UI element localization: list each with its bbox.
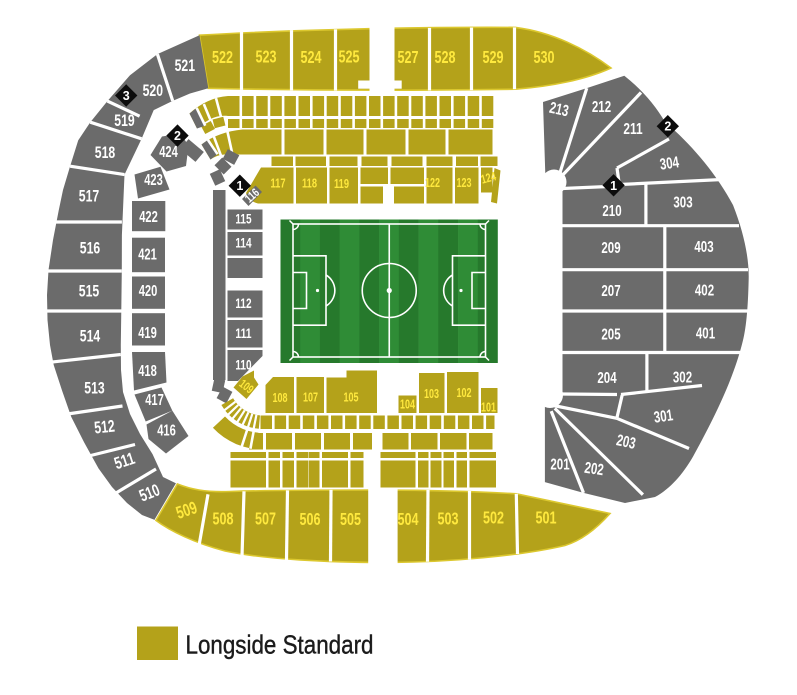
svg-text:513: 513 (84, 379, 104, 398)
svg-text:302: 302 (673, 370, 692, 387)
svg-text:107: 107 (303, 391, 318, 405)
svg-text:304: 304 (659, 154, 680, 174)
svg-text:112: 112 (235, 296, 251, 311)
svg-text:209: 209 (601, 240, 620, 257)
svg-text:519: 519 (114, 111, 134, 130)
svg-text:3: 3 (123, 89, 130, 103)
svg-text:2: 2 (174, 129, 181, 143)
svg-text:423: 423 (144, 172, 163, 189)
svg-text:108: 108 (273, 391, 288, 405)
svg-text:105: 105 (344, 391, 359, 405)
svg-text:521: 521 (175, 56, 195, 75)
svg-text:515: 515 (79, 282, 99, 301)
svg-text:403: 403 (694, 239, 713, 256)
svg-text:502: 502 (483, 508, 504, 528)
svg-text:503: 503 (438, 509, 459, 529)
svg-text:110: 110 (235, 358, 251, 373)
svg-text:507: 507 (255, 509, 276, 529)
svg-text:102: 102 (457, 386, 472, 400)
svg-text:416: 416 (157, 423, 176, 440)
svg-text:501: 501 (536, 508, 557, 528)
svg-text:517: 517 (79, 187, 99, 206)
svg-text:514: 514 (80, 327, 101, 346)
svg-text:424: 424 (159, 144, 178, 161)
svg-text:528: 528 (435, 47, 456, 67)
svg-text:504: 504 (398, 509, 419, 529)
svg-text:506: 506 (300, 509, 321, 529)
svg-text:520: 520 (143, 81, 163, 100)
svg-text:301: 301 (653, 407, 674, 427)
svg-text:210: 210 (602, 203, 621, 220)
svg-text:421: 421 (138, 247, 157, 264)
svg-text:202: 202 (583, 460, 604, 480)
svg-text:508: 508 (213, 509, 234, 529)
svg-text:530: 530 (534, 47, 555, 67)
svg-text:212: 212 (592, 99, 611, 116)
svg-text:101: 101 (481, 401, 496, 415)
svg-text:505: 505 (340, 509, 361, 529)
svg-text:512: 512 (93, 416, 115, 437)
svg-text:204: 204 (597, 370, 616, 387)
svg-text:114: 114 (235, 236, 252, 251)
svg-text:205: 205 (601, 327, 620, 344)
svg-text:523: 523 (256, 47, 277, 67)
svg-text:420: 420 (139, 283, 158, 300)
svg-text:Longside Standard: Longside Standard (186, 630, 374, 660)
svg-text:118: 118 (302, 177, 317, 191)
svg-text:1: 1 (236, 179, 243, 193)
svg-text:207: 207 (601, 283, 620, 300)
svg-text:522: 522 (212, 47, 233, 67)
svg-text:525: 525 (339, 47, 360, 67)
svg-text:2: 2 (664, 120, 671, 134)
svg-text:524: 524 (301, 47, 322, 67)
svg-text:117: 117 (271, 177, 286, 191)
svg-text:419: 419 (138, 325, 157, 342)
svg-text:211: 211 (623, 121, 642, 138)
svg-text:518: 518 (95, 143, 115, 162)
svg-text:422: 422 (139, 209, 158, 226)
svg-text:527: 527 (398, 47, 419, 67)
svg-text:418: 418 (138, 363, 157, 380)
svg-text:123: 123 (457, 176, 472, 190)
svg-text:103: 103 (424, 387, 439, 401)
svg-text:111: 111 (235, 326, 252, 341)
svg-text:1: 1 (610, 179, 617, 193)
svg-text:516: 516 (80, 239, 100, 258)
svg-text:303: 303 (673, 195, 692, 212)
svg-text:529: 529 (483, 47, 504, 67)
svg-text:401: 401 (696, 326, 715, 343)
svg-text:417: 417 (145, 392, 164, 409)
svg-text:115: 115 (235, 212, 252, 227)
svg-text:402: 402 (695, 283, 714, 300)
svg-text:104: 104 (400, 398, 415, 412)
svg-text:201: 201 (550, 457, 569, 474)
svg-text:119: 119 (334, 177, 349, 191)
svg-text:122: 122 (425, 176, 440, 190)
